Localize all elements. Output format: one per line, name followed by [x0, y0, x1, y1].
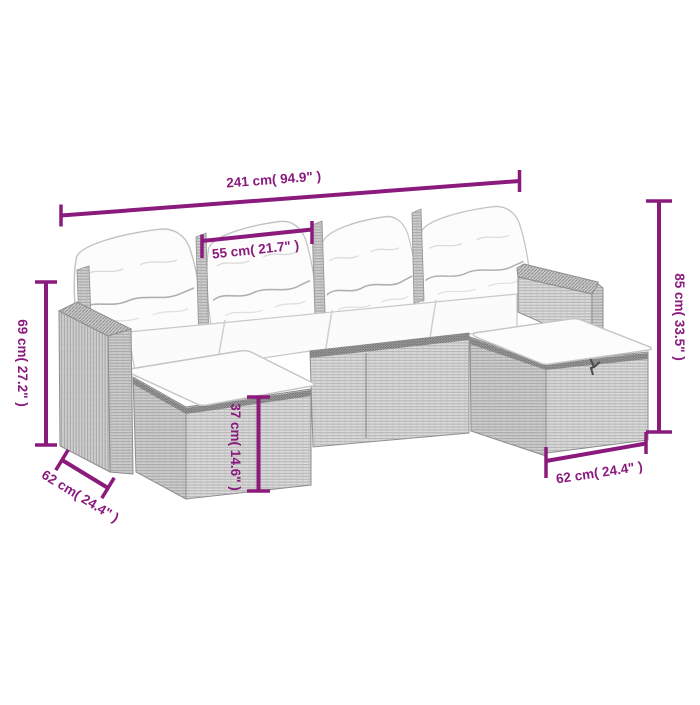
svg-text:69 cm( 27.2" ): 69 cm( 27.2" ) [15, 319, 30, 406]
svg-text:85 cm( 33.5" ): 85 cm( 33.5" ) [672, 273, 687, 360]
svg-text:37 cm( 14.6" ): 37 cm( 14.6" ) [228, 403, 243, 490]
